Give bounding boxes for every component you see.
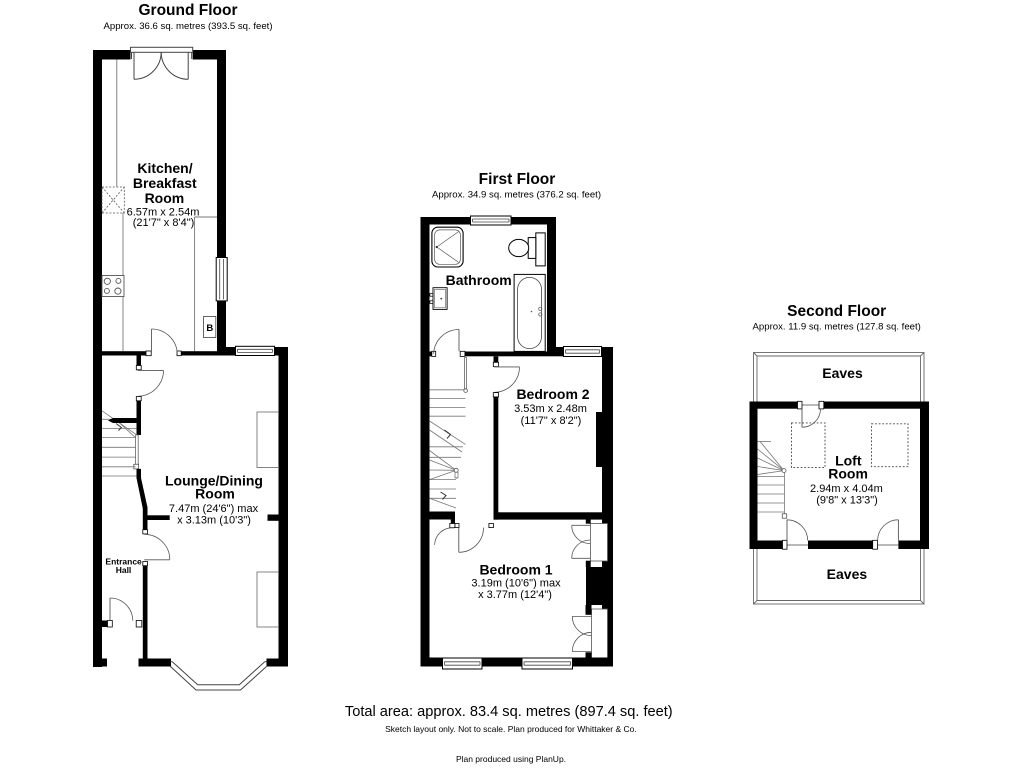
svg-text:B: B [206, 323, 213, 334]
svg-text:3.19m (10'6") max: 3.19m (10'6") max [471, 578, 561, 590]
svg-text:Sketch layout only. Not to sca: Sketch layout only. Not to scale. Plan p… [385, 724, 637, 734]
svg-text:3.53m x 2.48m: 3.53m x 2.48m [514, 403, 587, 415]
svg-text:Approx. 11.9 sq. metres (127.8: Approx. 11.9 sq. metres (127.8 sq. feet) [753, 322, 921, 333]
svg-text:Second Floor: Second Floor [787, 303, 886, 320]
svg-text:x 3.13m (10'3"): x 3.13m (10'3") [177, 515, 251, 527]
svg-text:(11'7" x 8'2"): (11'7" x 8'2") [521, 415, 582, 427]
svg-text:Bedroom 1: Bedroom 1 [479, 562, 552, 578]
svg-text:Ground Floor: Ground Floor [138, 2, 237, 19]
svg-text:Approx. 34.9 sq. metres (376.2: Approx. 34.9 sq. metres (376.2 sq. feet) [432, 190, 601, 201]
svg-text:Breakfast: Breakfast [133, 175, 197, 191]
svg-text:x 3.77m (12'4"): x 3.77m (12'4") [478, 589, 552, 601]
svg-text:Eaves: Eaves [827, 566, 868, 582]
svg-text:Room: Room [145, 190, 185, 206]
svg-text:(9'8" x 13'3"): (9'8" x 13'3") [816, 495, 878, 507]
svg-text:Hall: Hall [116, 565, 132, 575]
svg-text:(21'7" x 8'4"): (21'7" x 8'4") [133, 217, 195, 229]
svg-text:Bathroom: Bathroom [446, 272, 512, 288]
svg-text:7.47m (24'6") max: 7.47m (24'6") max [169, 503, 259, 515]
svg-text:Room: Room [828, 466, 868, 482]
svg-text:2.94m x 4.04m: 2.94m x 4.04m [810, 483, 883, 495]
svg-text:Kitchen/: Kitchen/ [137, 160, 192, 176]
svg-text:Eaves: Eaves [822, 365, 863, 381]
svg-text:First Floor: First Floor [479, 171, 556, 188]
svg-text:Bedroom 2: Bedroom 2 [516, 386, 589, 402]
svg-text:Total area: approx. 83.4 sq. m: Total area: approx. 83.4 sq. metres (897… [345, 704, 673, 720]
svg-text:Room: Room [195, 486, 235, 502]
svg-text:Approx. 36.6 sq. metres (393.5: Approx. 36.6 sq. metres (393.5 sq. feet) [103, 21, 272, 32]
svg-text:Plan produced using PlanUp.: Plan produced using PlanUp. [456, 754, 566, 764]
